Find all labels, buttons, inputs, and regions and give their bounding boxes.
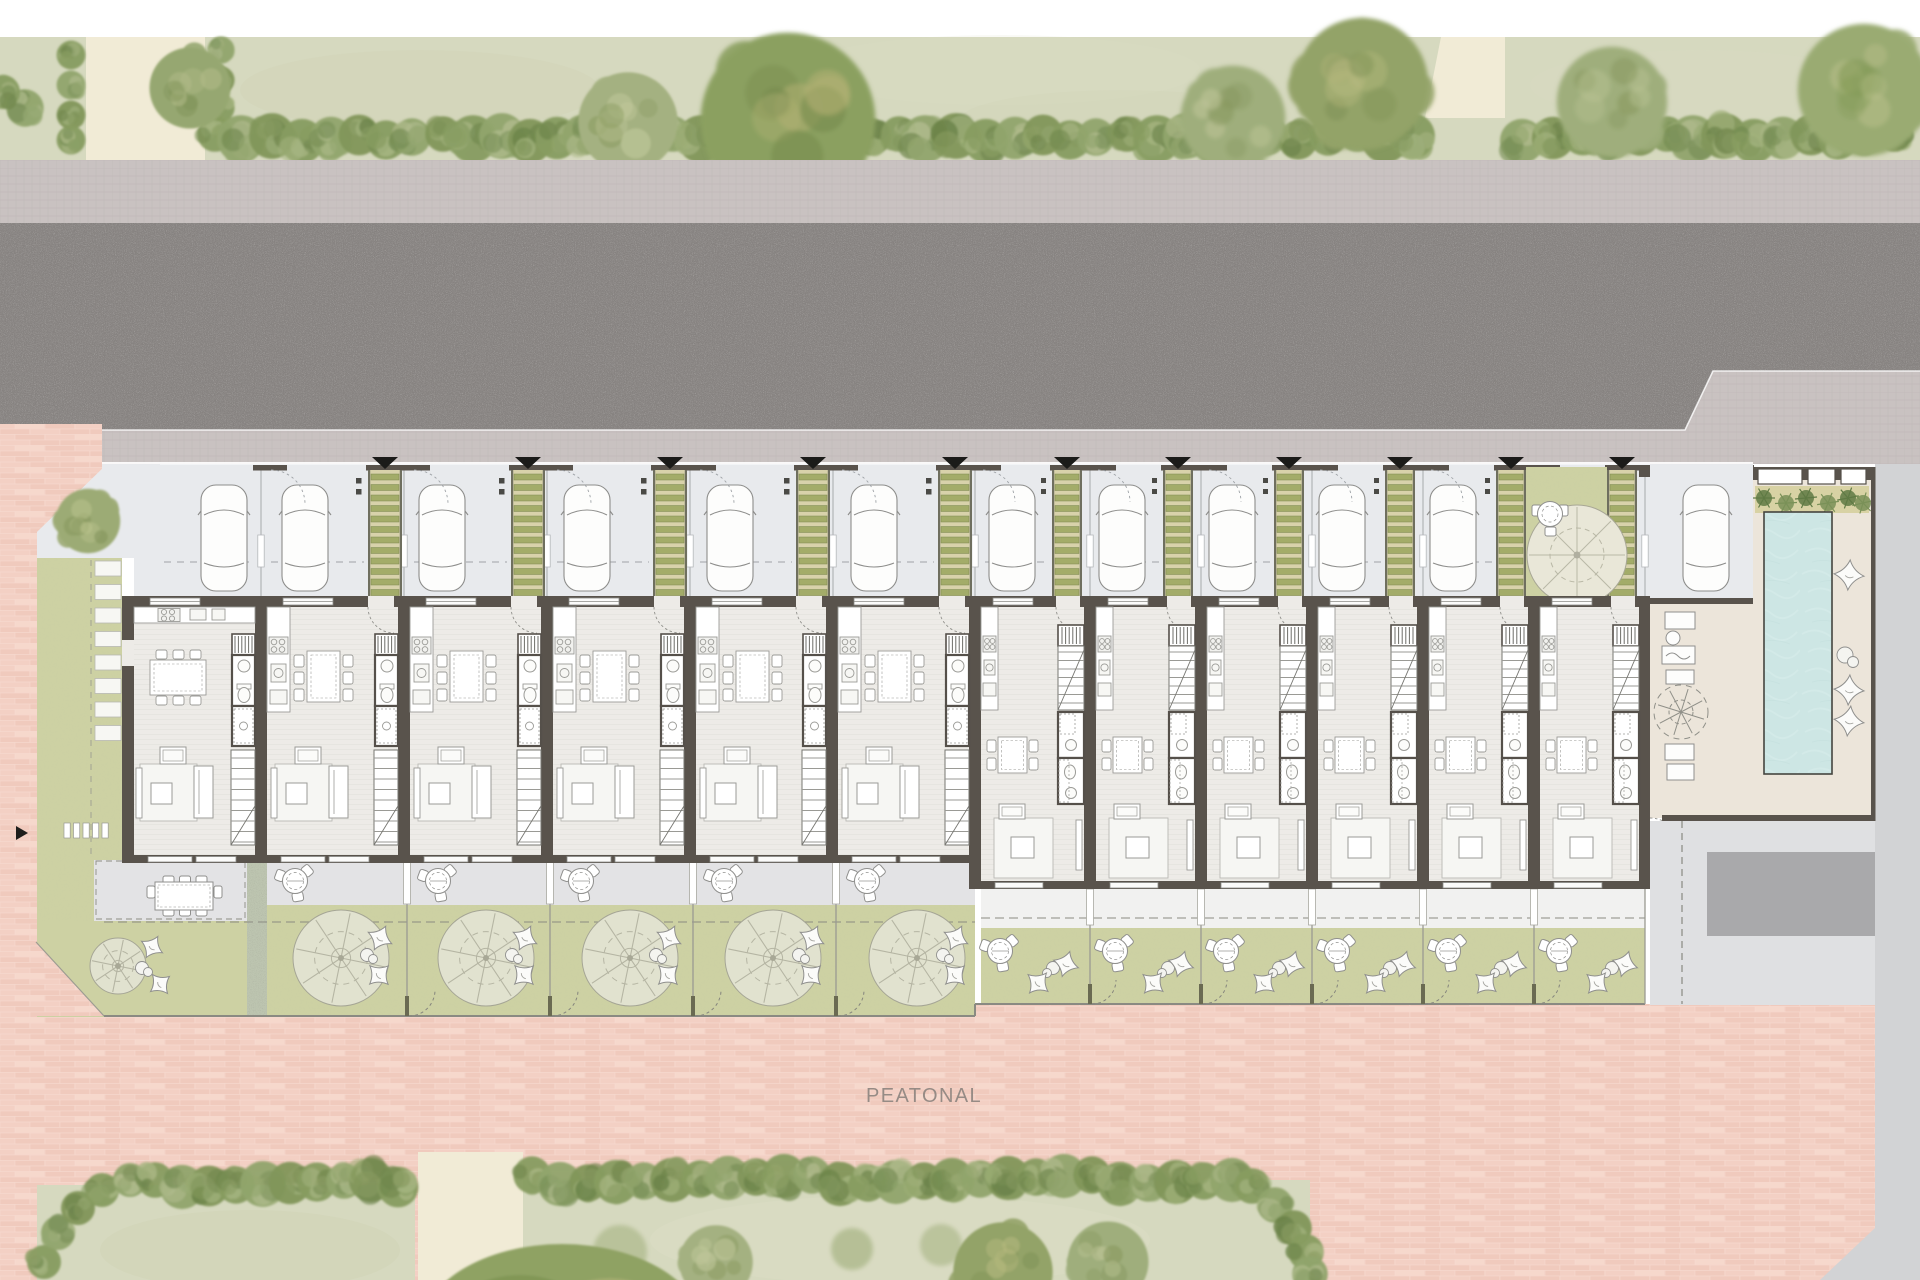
svg-text:PEATONAL: PEATONAL [866, 1085, 982, 1107]
